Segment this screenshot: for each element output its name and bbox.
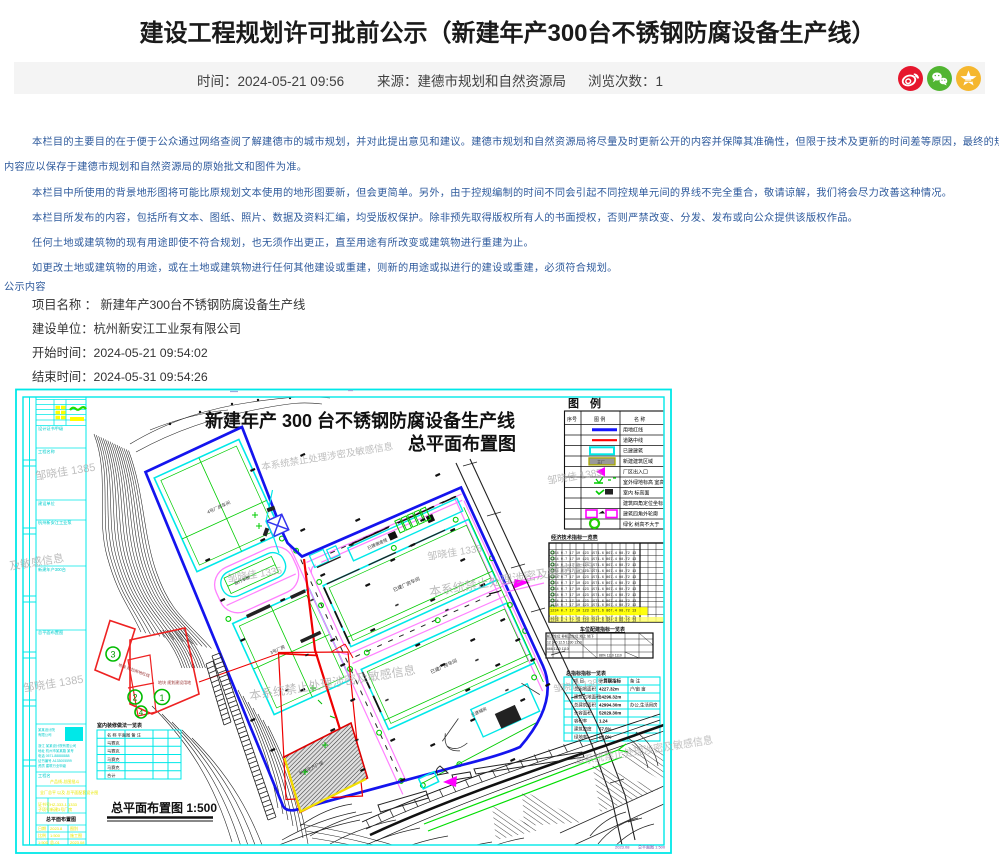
svg-text:1234 0.7 17 10 123 1571.6 867.: 1234 0.7 17 10 123 1571.6 867.4 98.72 13 <box>550 552 636 556</box>
svg-text:日期: 日期 <box>38 825 46 831</box>
svg-text:资质 建筑行业甲级: 资质 建筑行业甲级 <box>38 763 67 768</box>
svg-text:浙江 某某设计院有限公司: 浙江 某某设计院有限公司 <box>38 743 76 748</box>
svg-text:比例: 比例 <box>38 832 46 838</box>
svg-text:建筑四角外轮廓: 建筑四角外轮廓 <box>623 511 658 518</box>
svg-text:建设单位: 建设单位 <box>38 500 55 507</box>
svg-text:马赛克: 马赛克 <box>107 756 120 763</box>
svg-text:新建建筑区域: 新建建筑区域 <box>623 458 653 465</box>
svg-text:88% 1110 1110: 88% 1110 1110 <box>599 654 622 658</box>
svg-text:备 注: 备 注 <box>630 678 641 685</box>
svg-text:1234 0.7 17 10 123 1571.6 867.: 1234 0.7 17 10 123 1571.6 867.4 98.72 13 <box>550 588 636 592</box>
svg-text:序号: 序号 <box>567 416 577 423</box>
svg-text:总平面布置图: 总平面布置图 <box>38 629 63 636</box>
svg-text:工程名: 工程名 <box>38 772 51 779</box>
svg-text:2: 2 <box>132 693 137 703</box>
svg-text:1:500: 1:500 <box>50 833 61 838</box>
svg-text:3: 3 <box>110 650 115 660</box>
svg-text:1.24: 1.24 <box>599 719 608 724</box>
svg-text:证书编号 A133005599: 证书编号 A133005599 <box>38 758 72 763</box>
svg-text:新建年产 300 台不锈钢防腐设备生产线: 新建年产 300 台不锈钢防腐设备生产线 <box>205 410 515 431</box>
svg-text:有限公司: 有限公司 <box>38 732 52 737</box>
svg-text:总平面图 1:500: 总平面图 1:500 <box>638 844 666 850</box>
svg-text:名 称: 名 称 <box>634 416 645 423</box>
svg-text:4: 4 <box>139 709 144 718</box>
svg-text:建筑占地面积: 建筑占地面积 <box>574 694 601 701</box>
svg-text:地块 规划建设用地: 地块 规划建设用地 <box>158 679 191 685</box>
svg-text:图 例: 图 例 <box>594 416 605 423</box>
svg-text:马赛克: 马赛克 <box>107 764 120 771</box>
svg-text:子项号: 子项号 <box>38 806 50 812</box>
svg-text:某某设计院: 某某设计院 <box>38 727 56 732</box>
svg-text:12 340 12.5 1330 1310: 12 340 12.5 1330 1310 <box>547 641 582 645</box>
svg-text:马赛克: 马赛克 <box>107 740 120 747</box>
svg-text:设计证书甲级: 设计证书甲级 <box>38 425 64 432</box>
svg-text:总平面布置图: 总平面布置图 <box>408 433 516 454</box>
svg-text:马赛克: 马赛克 <box>107 748 120 755</box>
svg-text:室内装修做法一览表: 室内装修做法一览表 <box>97 722 143 729</box>
svg-text:户/亩 亩: 户/亩 亩 <box>630 686 646 693</box>
svg-text:名 称 平面图 备 注: 名 称 平面图 备 注 <box>107 731 142 738</box>
svg-text:42994.30m: 42994.30m <box>599 703 621 708</box>
svg-text:1:500: 1:500 <box>38 840 49 845</box>
svg-text:绿化 树高不大于: 绿化 树高不大于 <box>623 521 659 528</box>
svg-text:室内 标高面: 室内 标高面 <box>623 490 649 497</box>
svg-text:办公,生活用房: 办公,生活用房 <box>630 702 658 709</box>
svg-text:52029.30m: 52029.30m <box>599 711 621 716</box>
svg-text:图 例: 图 例 <box>568 396 605 410</box>
svg-text:2023.08: 2023.08 <box>615 845 630 850</box>
svg-text:1234 0.7 17 10 123 1571.6 867.: 1234 0.7 17 10 123 1571.6 867.4 98.72 13 <box>550 610 636 614</box>
svg-text:工程名称: 工程名称 <box>38 448 55 455</box>
svg-text:总-01: 总-01 <box>50 839 61 845</box>
svg-text:杭州新安江工业泵: 杭州新安江工业泵 <box>38 519 72 526</box>
svg-text:2023.08: 2023.08 <box>70 840 85 845</box>
svg-text:建筑四角定位坐标: 建筑四角定位坐标 <box>623 500 663 507</box>
svg-text:2023.8: 2023.8 <box>50 826 63 831</box>
svg-text:用地红线: 用地红线 <box>623 427 643 434</box>
svg-text:绿地率: 绿地率 <box>574 734 588 741</box>
svg-text:全厂总平 以及 总平面配套设计图: 全厂总平 以及 总平面配套设计图 <box>40 789 98 795</box>
svg-text:已建建筑: 已建建筑 <box>623 448 643 455</box>
svg-text:经济技术指标一览表: 经济技术指标一览表 <box>551 533 599 541</box>
svg-text:24296.32m: 24296.32m <box>599 695 621 700</box>
svg-text:总建筑面积: 总建筑面积 <box>574 702 597 709</box>
svg-text:新建3号厂房: 新建3号厂房 <box>50 806 72 812</box>
svg-text:厂区出入口: 厂区出入口 <box>623 469 648 476</box>
svg-text:电话 0571-88888888: 电话 0571-88888888 <box>38 753 70 758</box>
svg-text:4227.32m: 4227.32m <box>599 687 619 692</box>
svg-text:总平面布置图 1:500: 总平面布置图 1:500 <box>111 800 217 815</box>
svg-text:机动车位 非机动车位 地上 地下: 机动车位 非机动车位 地上 地下 <box>547 634 595 639</box>
svg-text:总平面布置图: 总平面布置图 <box>46 816 76 823</box>
svg-text:施工图: 施工图 <box>70 832 82 838</box>
svg-text:地址 杭州市某某路 某号: 地址 杭州市某某路 某号 <box>38 748 74 753</box>
svg-text:产品线-总图批斗: 产品线-总图批斗 <box>50 778 79 784</box>
svg-text:1: 1 <box>159 693 164 703</box>
svg-text:道路中线: 道路中线 <box>623 437 643 444</box>
svg-text:合计: 合计 <box>107 772 115 779</box>
svg-text:1234 0.7 17 10 123 1571.6 867.: 1234 0.7 17 10 123 1571.6 867.4 98.72 13 <box>550 620 636 624</box>
svg-text:1234 0.7 17 10 123 1571.6 867.: 1234 0.7 17 10 123 1571.6 867.4 98.72 13 <box>550 582 636 586</box>
svg-text:主厂: 主厂 <box>597 459 605 465</box>
svg-text:车位配建指标一览表: 车位配建指标一览表 <box>580 626 626 633</box>
svg-text:1234 0.7 17 10 123 1571.6 867.: 1234 0.7 17 10 123 1571.6 867.4 98.72 13 <box>550 594 636 598</box>
svg-text:1234 0.7 17 10 123 1571.6 867.: 1234 0.7 17 10 123 1571.6 867.4 98.72 13 <box>550 604 636 608</box>
svg-text:图别: 图别 <box>70 825 78 831</box>
